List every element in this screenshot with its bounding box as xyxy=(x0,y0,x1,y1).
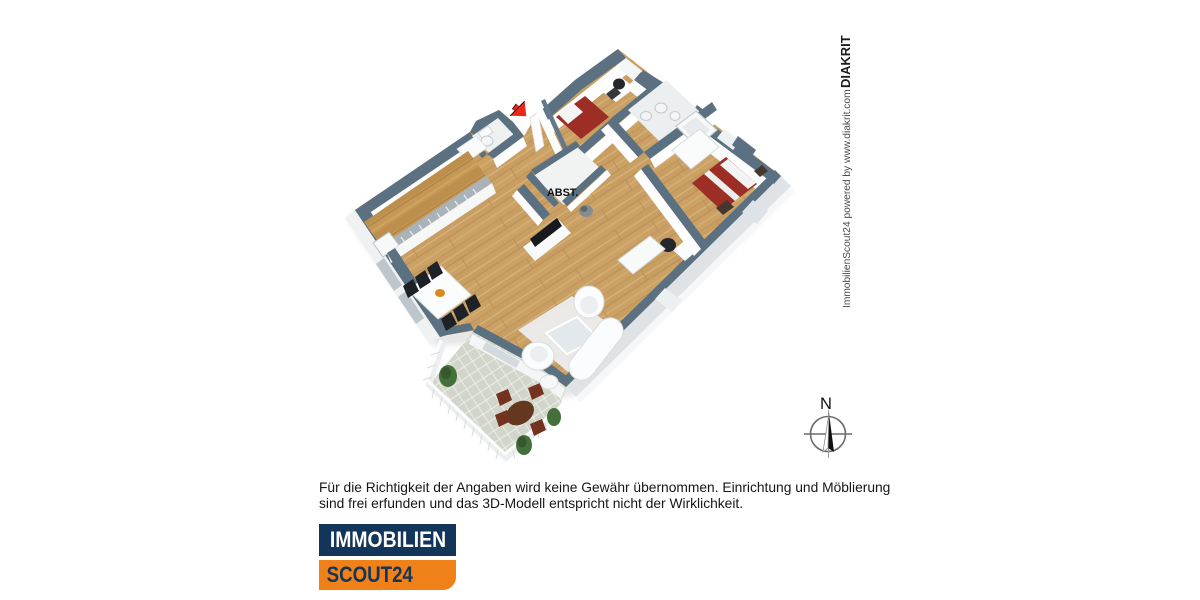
svg-text:ABST.: ABST. xyxy=(547,187,578,199)
svg-text:DIAKRIT: DIAKRIT xyxy=(838,35,853,88)
svg-text:N: N xyxy=(820,395,832,413)
svg-text:ImmobilienScout24 powered by w: ImmobilienScout24 powered by www.diakrit… xyxy=(842,89,853,308)
